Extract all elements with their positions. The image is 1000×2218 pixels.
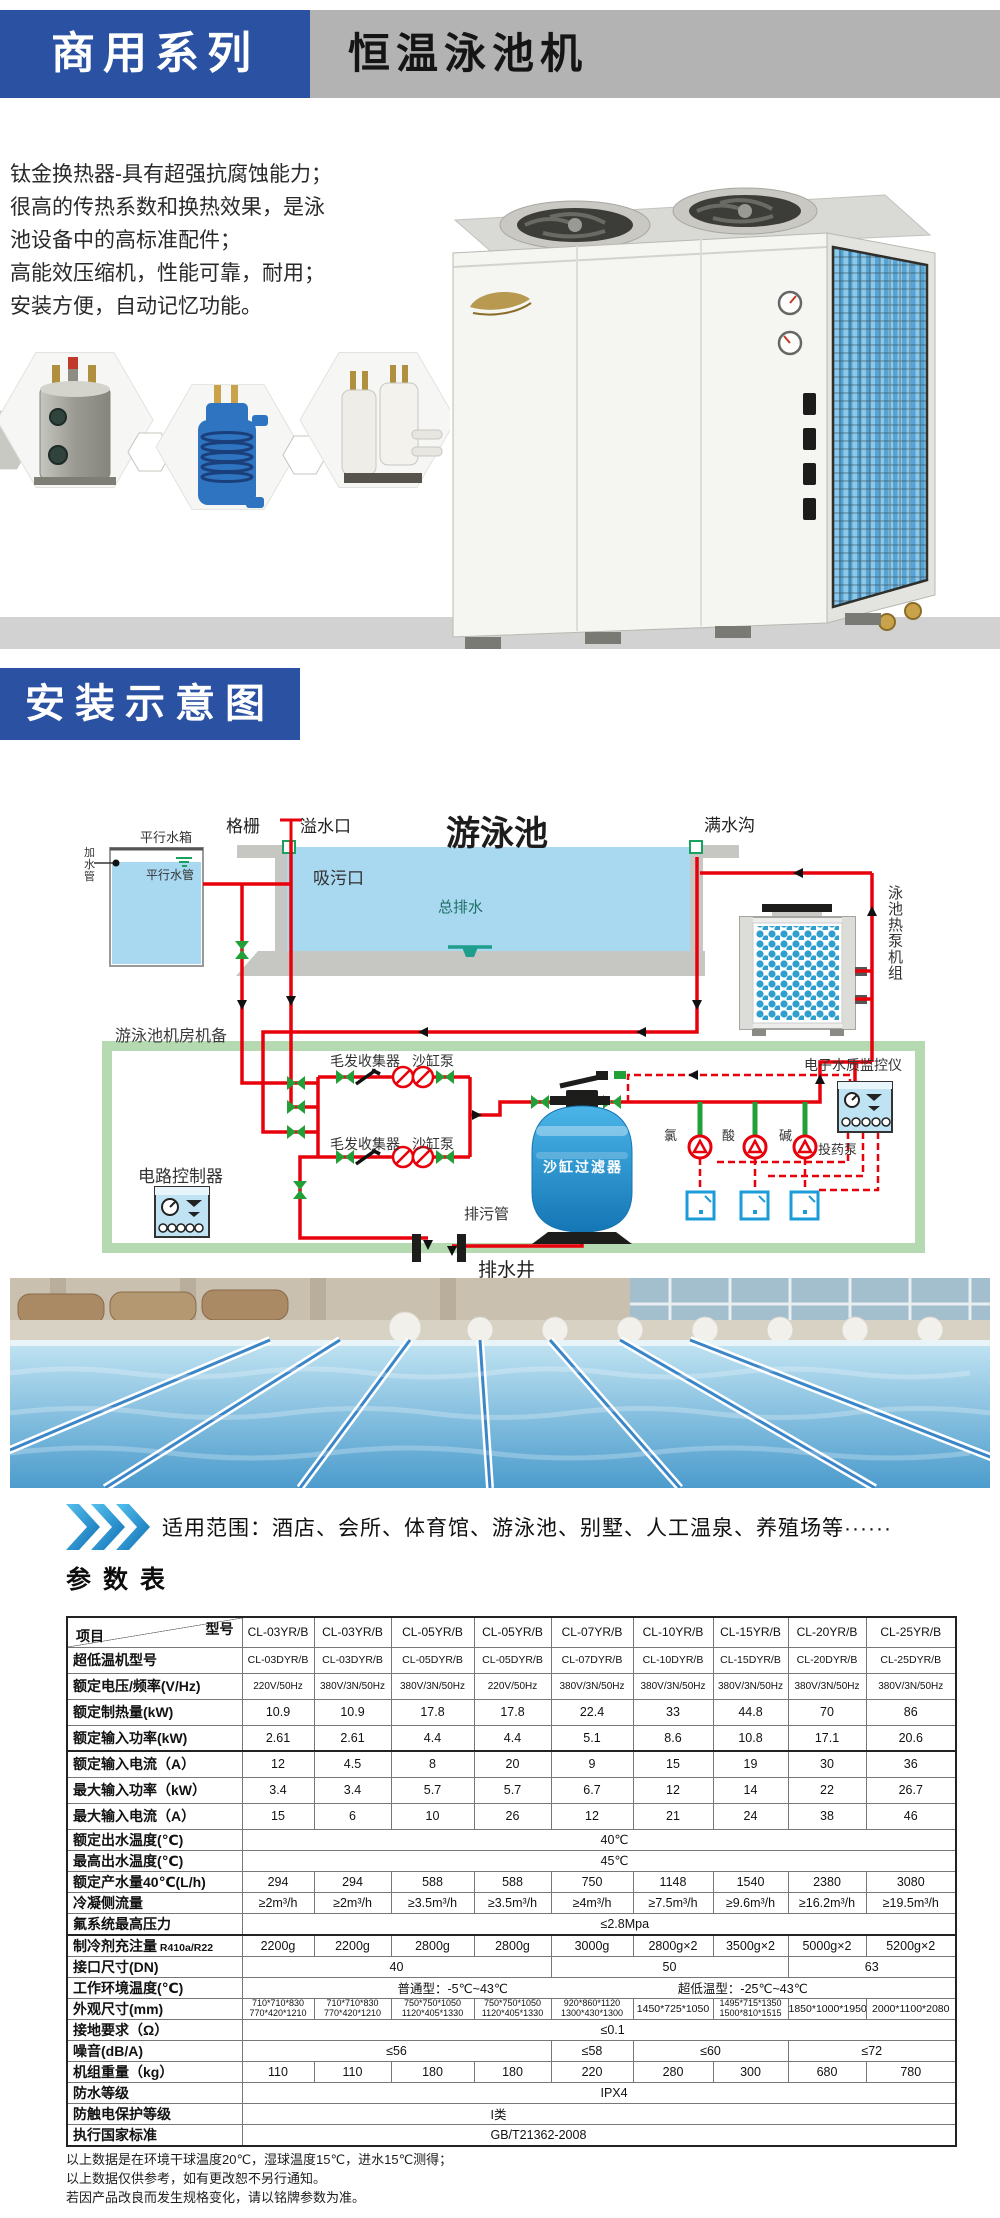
spec-cell: 2.61	[242, 1725, 314, 1751]
spec-row: 额定电压/频率(V/Hz)220V/50Hz380V/3N/50Hz380V/3…	[67, 1673, 956, 1699]
intro-line: 高能效压缩机，性能可靠，耐用；	[10, 257, 480, 290]
spec-cell: CL-25DYR/B	[866, 1647, 956, 1673]
spec-row: 最高出水温度(℃)45℃	[67, 1850, 956, 1871]
label-acid: 酸	[722, 1128, 735, 1143]
spec-cell: 5.7	[474, 1777, 551, 1803]
spec-row: 额定产水量40℃(L/h)294294588588750114815402380…	[67, 1871, 956, 1892]
spec-cell: 20	[474, 1751, 551, 1777]
spec-cell: 3.4	[314, 1777, 391, 1803]
spec-cell: 12	[551, 1803, 633, 1829]
spec-cell: ≤0.1	[242, 2019, 956, 2040]
spec-cell: 380V/3N/50Hz	[391, 1673, 474, 1699]
spec-cell: 710*710*830770*420*1210	[314, 1998, 391, 2019]
spec-cell: 6.7	[551, 1777, 633, 1803]
spec-cell: 380V/3N/50Hz	[314, 1673, 391, 1699]
row-label: 噪音(dB/A)	[67, 2040, 242, 2061]
label-sand-pump: 沙缸泵	[412, 1053, 454, 1069]
spec-cell: GB/T21362-2008	[242, 2124, 956, 2146]
row-label: 防水等级	[67, 2082, 242, 2103]
intro-line: 很高的传热系数和换热效果，是泳	[10, 191, 480, 224]
spec-cell: 8.6	[633, 1725, 713, 1751]
spec-cell: 30	[788, 1751, 866, 1777]
spec-cell: CL-03DYR/B	[314, 1647, 391, 1673]
spec-cell: 20.6	[866, 1725, 956, 1751]
corner-item-label: 项目	[76, 1626, 104, 1646]
spec-cell: ≥2m³/h	[242, 1892, 314, 1913]
spec-cell: 10.9	[242, 1699, 314, 1725]
fan-top	[673, 188, 817, 234]
install-title: 安装示意图	[25, 682, 275, 726]
spec-row: 超低温机型号CL-03DYR/BCL-03DYR/BCL-05DYR/BCL-0…	[67, 1647, 956, 1673]
spec-cell: CL-05DYR/B	[474, 1647, 551, 1673]
spec-row: 最大输入电流（A）15610261221243846	[67, 1803, 956, 1829]
spec-cell: 300	[713, 2061, 788, 2082]
spec-cell: 8	[391, 1751, 474, 1777]
spec-cell: CL-03DYR/B	[242, 1647, 314, 1673]
product-title-banner: 恒温泳池机	[310, 10, 1000, 98]
intro-line: 安装方便，自动记忆功能。	[10, 290, 480, 323]
label-controller: 电路控制器	[138, 1167, 223, 1186]
row-label: 额定输入功率(kW)	[67, 1725, 242, 1751]
coil-exchanger-photo	[156, 385, 300, 510]
spec-cell: ≤60	[633, 2040, 788, 2061]
series-label: 商用系列	[51, 29, 259, 78]
spec-cell: 5.1	[551, 1725, 633, 1751]
installation-diagram: 平行水箱 加水管 平行水管 格栅 溢水口 游泳池 满水沟 吸污口 总排水 泳池热…	[0, 770, 1000, 1280]
spec-cell: 17.8	[474, 1699, 551, 1725]
spec-cell: 33	[633, 1699, 713, 1725]
corner-model-label: 型号	[206, 1619, 234, 1639]
row-label: 额定制热量(kW)	[67, 1699, 242, 1725]
water-port	[879, 614, 895, 630]
label-parallel-pipe: 平行水管	[146, 867, 194, 882]
spec-cell: CL-07DYR/B	[551, 1647, 633, 1673]
spec-row: 机组重量（kg）110110180180220280300680780	[67, 2061, 956, 2082]
spec-cell: CL-10DYR/B	[633, 1647, 713, 1673]
spec-cell: 10.9	[314, 1699, 391, 1725]
spec-cell: CL-05DYR/B	[391, 1647, 474, 1673]
spec-cell: 15	[242, 1803, 314, 1829]
row-label: 氟系统最高压力	[67, 1913, 242, 1935]
spec-body: 超低温机型号CL-03DYR/BCL-03DYR/BCL-05DYR/BCL-0…	[67, 1647, 956, 2146]
parallel-water-tank	[94, 848, 203, 966]
spec-cell: 4.4	[391, 1725, 474, 1751]
spec-cell: 588	[391, 1871, 474, 1892]
spec-cell: 38	[788, 1803, 866, 1829]
spec-cell: 15	[633, 1751, 713, 1777]
model-cell: CL-05YR/B	[391, 1617, 474, 1647]
footnotes: 以上数据是在环境干球温度20℃，湿球温度15℃，进水15℃测得； 以上数据仅供参…	[66, 2150, 452, 2207]
pool-photo	[10, 1278, 990, 1488]
spec-cell: 220	[551, 2061, 633, 2082]
label-blowdown: 排污管	[464, 1206, 509, 1223]
label-hair-collector: 毛发收集器	[330, 1053, 400, 1069]
drain-stub	[412, 1234, 421, 1262]
footnote-line: 若因产品改良而发生规格变化，请以铭牌参数为准。	[66, 2188, 452, 2207]
spec-cell: ≤58	[551, 2040, 633, 2061]
label-main-drain: 总排水	[438, 899, 483, 916]
spec-table: 型号 项目 CL-03YR/BCL-03YR/BCL-05YR/BCL-05YR…	[66, 1616, 957, 2147]
label-parallel-tank: 平行水箱	[140, 830, 192, 845]
spec-cell: 22.4	[551, 1699, 633, 1725]
intro-line: 钛金换热器-具有超强抗腐蚀能力；	[10, 158, 480, 191]
spec-cell: ≥19.5m³/h	[866, 1892, 956, 1913]
spec-row: 最大输入功率（kW）3.43.45.75.76.712142226.7	[67, 1777, 956, 1803]
row-label: 最大输入功率（kW）	[67, 1777, 242, 1803]
row-label: 工作环境温度(℃)	[67, 1977, 242, 1998]
spec-cell: 2800g	[391, 1935, 474, 1957]
label-alkali: 碱	[779, 1128, 792, 1143]
spec-table-title: 参数表	[66, 1560, 177, 1596]
spec-cell: 1540	[713, 1871, 788, 1892]
spec-row: 氟系统最高压力≤2.8Mpa	[67, 1913, 956, 1935]
spec-cell: 110	[242, 2061, 314, 2082]
label-grille: 格栅	[226, 817, 260, 836]
spec-cell: 1850*1000*1950	[788, 1998, 866, 2019]
label-gutter: 满水沟	[704, 816, 755, 835]
label-machine-room: 游泳池机房机备	[115, 1027, 227, 1045]
spec-cell: 40℃	[242, 1829, 956, 1850]
spec-row: 冷凝侧流量≥2m³/h≥2m³/h≥3.5m³/h≥3.5m³/h≥4m³/h≥…	[67, 1892, 956, 1913]
water-quality-monitor-box	[838, 1082, 892, 1132]
spec-cell: 2200g	[314, 1935, 391, 1957]
spec-cell: 26	[474, 1803, 551, 1829]
spec-cell: CL-15DYR/B	[713, 1647, 788, 1673]
spec-row: 额定输入电流（A）124.5820915193036	[67, 1751, 956, 1777]
row-label: 执行国家标准	[67, 2124, 242, 2146]
spec-cell: 920*860*11201300*430*1300	[551, 1998, 633, 2019]
row-label: 机组重量（kg）	[67, 2061, 242, 2082]
spec-cell: 1148	[633, 1871, 713, 1892]
row-label: 外观尺寸(mm)	[67, 1998, 242, 2019]
spec-cell: 14	[713, 1777, 788, 1803]
spec-cell: ≥7.5m³/h	[633, 1892, 713, 1913]
model-cell: CL-20YR/B	[788, 1617, 866, 1647]
spec-cell: 24	[713, 1803, 788, 1829]
spec-cell: 1450*725*1050	[633, 1998, 713, 2019]
heat-pump-unit-diagram	[740, 904, 867, 1036]
spec-cell: 380V/3N/50Hz	[713, 1673, 788, 1699]
circuit-controller-box	[155, 1187, 209, 1237]
spec-cell: 普通型：-5℃~43℃超低温型：-25℃~43℃	[242, 1977, 956, 1998]
spec-cell: 2200g	[242, 1935, 314, 1957]
spec-cell: 36	[866, 1751, 956, 1777]
spec-row: 防水等级IPX4	[67, 2082, 956, 2103]
row-label: 额定出水温度(℃)	[67, 1829, 242, 1850]
row-label: 防触电保护等级	[67, 2103, 242, 2124]
spec-cell: 750*750*10501120*405*1330	[474, 1998, 551, 2019]
spec-cell: ≥2m³/h	[314, 1892, 391, 1913]
spec-cell: 63	[788, 1956, 956, 1977]
spec-cell: IPX4	[242, 2082, 956, 2103]
spec-cell: 2800g×2	[633, 1935, 713, 1957]
spec-cell: 110	[314, 2061, 391, 2082]
spec-cell: 380V/3N/50Hz	[633, 1673, 713, 1699]
spec-cell: 70	[788, 1699, 866, 1725]
row-label: 额定产水量40℃(L/h)	[67, 1871, 242, 1892]
spec-cell: 44.8	[713, 1699, 788, 1725]
spec-cell: 220V/50Hz	[474, 1673, 551, 1699]
spec-cell: 3080	[866, 1871, 956, 1892]
model-cell: CL-25YR/B	[866, 1617, 956, 1647]
spec-cell: ≤56	[242, 2040, 551, 2061]
corner-cell: 型号 项目	[67, 1617, 242, 1647]
spec-row: 接地要求（Ω）≤0.1	[67, 2019, 956, 2040]
footnote-line: 以上数据是在环境干球温度20℃，湿球温度15℃，进水15℃测得；	[66, 2150, 452, 2169]
spec-cell: 380V/3N/50Hz	[551, 1673, 633, 1699]
spec-cell: 710*710*830770*420*1210	[242, 1998, 314, 2019]
model-cell: CL-03YR/B	[314, 1617, 391, 1647]
label-sand-filter: 沙缸过滤器	[543, 1159, 623, 1175]
loungers	[18, 1290, 288, 1324]
dosing-pump-symbol	[689, 1136, 816, 1158]
spec-cell: 10	[391, 1803, 474, 1829]
fan-top	[500, 201, 650, 249]
spec-cell: 50	[551, 1956, 788, 1977]
spec-row: 工作环境温度(℃)普通型：-5℃~43℃超低温型：-25℃~43℃	[67, 1977, 956, 1998]
spec-cell: 280	[633, 2061, 713, 2082]
spec-cell: 3.4	[242, 1777, 314, 1803]
model-cell: CL-15YR/B	[713, 1617, 788, 1647]
intro-line: 池设备中的高标准配件；	[10, 224, 480, 257]
spec-row: 制冷剂充注量 R410a/R222200g2200g2800g2800g3000…	[67, 1935, 956, 1957]
spec-row: 额定出水温度(℃)40℃	[67, 1829, 956, 1850]
spec-cell: CL-20DYR/B	[788, 1647, 866, 1673]
row-label: 额定输入电流（A）	[67, 1751, 242, 1777]
spec-cell: ≥9.6m³/h	[713, 1892, 788, 1913]
spec-cell: 12	[633, 1777, 713, 1803]
label-pool: 游泳池	[446, 815, 548, 853]
spec-cell: 9	[551, 1751, 633, 1777]
label-heat-pump-unit: 泳池热泵机组	[888, 885, 903, 982]
applicable-range-text: 适用范围：酒店、会所、体育馆、游泳池、别墅、人工温泉、养殖场等······	[162, 1512, 892, 1542]
label-chlorine: 氯	[664, 1128, 677, 1143]
titanium-exchanger-photo	[0, 353, 153, 488]
label-dosing-pump: 投药泵	[818, 1142, 857, 1157]
heat-exchanger-thumbnails	[0, 335, 450, 515]
spec-cell: ≥4m³/h	[551, 1892, 633, 1913]
spec-head-row: 型号 项目 CL-03YR/BCL-03YR/BCL-05YR/BCL-05YR…	[67, 1617, 956, 1647]
row-label: 最高出水温度(℃)	[67, 1850, 242, 1871]
spec-row: 接口尺寸(DN)405063	[67, 1956, 956, 1977]
spec-cell: 22	[788, 1777, 866, 1803]
row-label: 额定电压/频率(V/Hz)	[67, 1673, 242, 1699]
spec-cell: ≥3.5m³/h	[474, 1892, 551, 1913]
section-title-install: 安装示意图	[0, 668, 300, 740]
label-suction: 吸污口	[313, 869, 364, 888]
spec-cell: 17.1	[788, 1725, 866, 1751]
drain-stub	[457, 1234, 466, 1262]
model-cell: CL-05YR/B	[474, 1617, 551, 1647]
spec-cell: 4.4	[474, 1725, 551, 1751]
row-label: 接口尺寸(DN)	[67, 1956, 242, 1977]
spec-row: 执行国家标准GB/T21362-2008	[67, 2124, 956, 2146]
spec-cell: ≤2.8Mpa	[242, 1913, 956, 1935]
series-banner: 商用系列	[0, 10, 310, 98]
spec-cell: 10.8	[713, 1725, 788, 1751]
spec-cell: I类	[242, 2103, 956, 2124]
model-cell: CL-10YR/B	[633, 1617, 713, 1647]
spec-cell: 5000g×2	[788, 1935, 866, 1957]
spec-row: 防触电保护等级I类	[67, 2103, 956, 2124]
label-fill-pipe: 加水管	[84, 846, 95, 883]
spec-cell: 4.5	[314, 1751, 391, 1777]
spec-cell: 5.7	[391, 1777, 474, 1803]
spec-cell: 220V/50Hz	[242, 1673, 314, 1699]
row-label: 制冷剂充注量 R410a/R22	[67, 1935, 242, 1957]
label-overflow: 溢水口	[300, 817, 351, 836]
spec-cell: 5200g×2	[866, 1935, 956, 1957]
spec-cell: 180	[474, 2061, 551, 2082]
spec-cell: 2000*1100*2080	[866, 1998, 956, 2019]
spec-row: 噪音(dB/A)≤56≤58≤60≤72	[67, 2040, 956, 2061]
spec-cell: 294	[242, 1871, 314, 1892]
spec-row: 外观尺寸(mm)710*710*830770*420*1210710*710*8…	[67, 1998, 956, 2019]
chevrons-icon	[66, 1504, 150, 1550]
evaporator-coil	[833, 247, 927, 607]
spec-cell: ≤72	[788, 2040, 956, 2061]
spec-cell: 380V/3N/50Hz	[866, 1673, 956, 1699]
spec-cell: 3500g×2	[713, 1935, 788, 1957]
spec-cell: 17.8	[391, 1699, 474, 1725]
row-label: 最大输入电流（A）	[67, 1803, 242, 1829]
chemical-tanks	[687, 1192, 818, 1219]
spec-cell: 46	[866, 1803, 956, 1829]
spec-cell: 12	[242, 1751, 314, 1777]
spec-cell: 3000g	[551, 1935, 633, 1957]
product-title: 恒温泳池机	[348, 30, 588, 77]
spec-row: 额定制热量(kW)10.910.917.817.822.43344.87086	[67, 1699, 956, 1725]
spec-cell: 180	[391, 2061, 474, 2082]
label-monitor: 电子水质监控仪	[804, 1057, 902, 1073]
spec-cell: 780	[866, 2061, 956, 2082]
spec-row: 额定输入功率(kW)2.612.614.44.45.18.610.817.120…	[67, 1725, 956, 1751]
row-label: 超低温机型号	[67, 1647, 242, 1673]
spec-cell: 21	[633, 1803, 713, 1829]
spec-cell: 6	[314, 1803, 391, 1829]
spec-cell: 26.7	[866, 1777, 956, 1803]
label-drain-well: 排水井	[478, 1259, 535, 1280]
spec-cell: 294	[314, 1871, 391, 1892]
spec-cell: ≥16.2m³/h	[788, 1892, 866, 1913]
applicable-range-row: 适用范围：酒店、会所、体育馆、游泳池、别墅、人工温泉、养殖场等······	[66, 1504, 892, 1550]
spec-cell: 380V/3N/50Hz	[788, 1673, 866, 1699]
label-sand-pump: 沙缸泵	[412, 1136, 454, 1152]
spec-cell: 2380	[788, 1871, 866, 1892]
spec-cell: 750	[551, 1871, 633, 1892]
spec-cell: ≥3.5m³/h	[391, 1892, 474, 1913]
product-photo	[425, 125, 965, 655]
model-cell: CL-07YR/B	[551, 1617, 633, 1647]
row-label: 接地要求（Ω）	[67, 2019, 242, 2040]
model-cell: CL-03YR/B	[242, 1617, 314, 1647]
spec-cell: 40	[242, 1956, 551, 1977]
label-hair-collector: 毛发收集器	[330, 1136, 400, 1152]
spec-cell: 680	[788, 2061, 866, 2082]
spec-cell: 1495*715*13501500*810*1515	[713, 1998, 788, 2019]
spec-cell: 2.61	[314, 1725, 391, 1751]
spec-cell: 588	[474, 1871, 551, 1892]
spec-cell: 45℃	[242, 1850, 956, 1871]
spec-cell: 750*750*10501120*405*1330	[391, 1998, 474, 2019]
spec-cell: 2800g	[474, 1935, 551, 1957]
intro-text: 钛金换热器-具有超强抗腐蚀能力； 很高的传热系数和换热效果，是泳 池设备中的高标…	[10, 158, 480, 323]
row-label: 冷凝侧流量	[67, 1892, 242, 1913]
spec-cell: 19	[713, 1751, 788, 1777]
footnote-line: 以上数据仅供参考，如有更改恕不另行通知。	[66, 2169, 452, 2188]
water-port	[905, 603, 921, 619]
spec-cell: 86	[866, 1699, 956, 1725]
